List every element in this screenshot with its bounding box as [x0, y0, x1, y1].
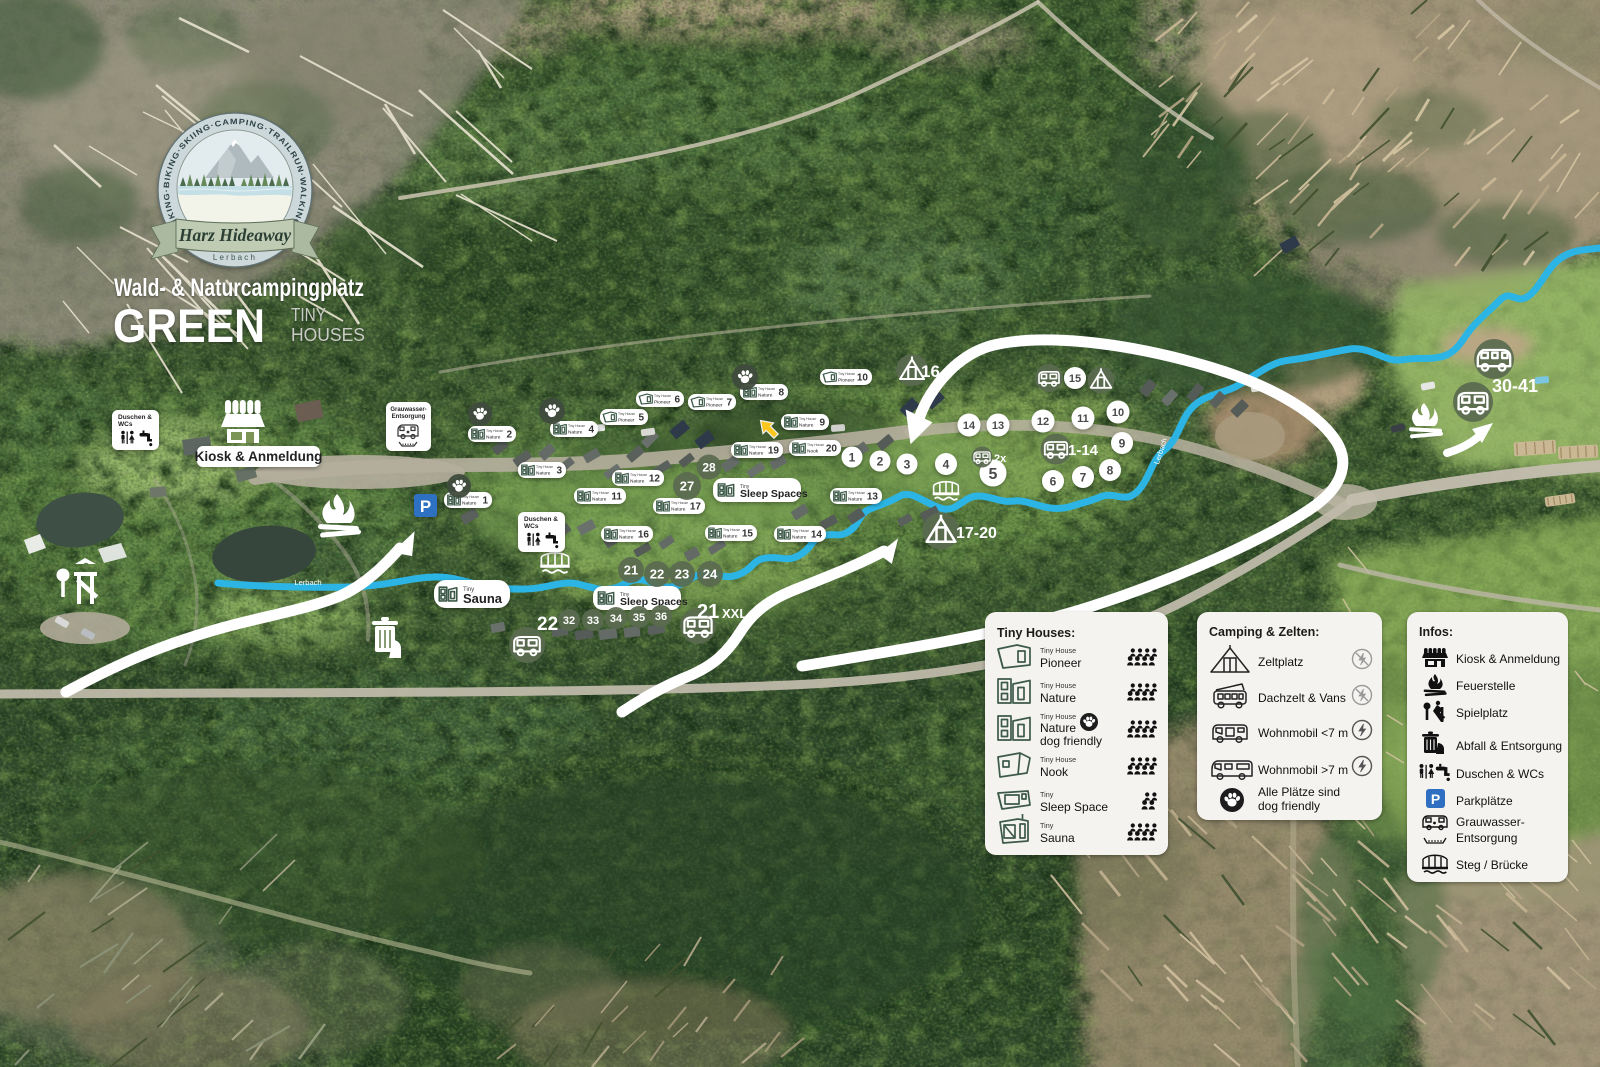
svg-text:5: 5 — [989, 466, 998, 483]
svg-text:Nature: Nature — [758, 392, 773, 398]
svg-text:Nature: Nature — [568, 429, 583, 435]
svg-text:Nook: Nook — [1040, 765, 1069, 779]
svg-text:Kiosk & Anmeldung: Kiosk & Anmeldung — [1456, 652, 1560, 666]
svg-text:Tiny House: Tiny House — [799, 417, 816, 421]
svg-text:dog friendly: dog friendly — [1040, 734, 1102, 748]
svg-text:8: 8 — [1107, 463, 1114, 477]
svg-text:2x: 2x — [994, 453, 1007, 465]
svg-text:Tiny House: Tiny House — [486, 429, 503, 433]
svg-text:14: 14 — [963, 420, 976, 432]
svg-text:10: 10 — [857, 373, 869, 384]
svg-text:Alle Plätze sind: Alle Plätze sind — [1258, 785, 1340, 799]
svg-text:17-20: 17-20 — [956, 525, 997, 542]
svg-text:4: 4 — [943, 457, 950, 471]
svg-text:Zeltplatz: Zeltplatz — [1258, 655, 1303, 669]
svg-text:Nature: Nature — [462, 500, 477, 506]
svg-text:Nature: Nature — [630, 478, 645, 484]
svg-text:8: 8 — [778, 388, 784, 399]
svg-text:Wohnmobil <7 m: Wohnmobil <7 m — [1258, 726, 1348, 740]
svg-text:Tiny House: Tiny House — [1040, 646, 1076, 655]
svg-text:2: 2 — [506, 430, 512, 441]
svg-text:11: 11 — [1077, 413, 1089, 425]
svg-text:1: 1 — [849, 450, 856, 464]
svg-text:21: 21 — [697, 601, 719, 623]
svg-text:Pioneer: Pioneer — [706, 402, 723, 408]
svg-text:22: 22 — [650, 567, 664, 582]
svg-text:9: 9 — [1119, 436, 1126, 450]
svg-text:14: 14 — [811, 530, 823, 541]
svg-text:GREEN: GREEN — [113, 299, 265, 352]
svg-text:Harz Hideaway: Harz Hideaway — [178, 225, 292, 245]
svg-text:19: 19 — [768, 446, 780, 457]
svg-text:7: 7 — [726, 398, 732, 409]
svg-text:32: 32 — [563, 615, 575, 627]
svg-text:Kiosk & Anmeldung: Kiosk & Anmeldung — [195, 449, 323, 464]
svg-text:Pioneer: Pioneer — [1040, 656, 1081, 670]
svg-text:P: P — [420, 497, 431, 516]
svg-text:Lerbach: Lerbach — [213, 253, 257, 262]
svg-text:XXL: XXL — [722, 606, 747, 621]
svg-text:Nature: Nature — [671, 506, 686, 512]
svg-text:Wald- & Naturcampingplatz: Wald- & Naturcampingplatz — [114, 274, 364, 302]
svg-text:P: P — [1431, 791, 1440, 807]
svg-text:Duschen &: Duschen & — [524, 516, 558, 523]
svg-text:9: 9 — [819, 418, 825, 429]
svg-text:Nature: Nature — [536, 470, 551, 476]
svg-text:Sleep Spaces: Sleep Spaces — [620, 596, 688, 608]
svg-text:Nook: Nook — [807, 448, 819, 454]
svg-text:Entsorgung: Entsorgung — [392, 414, 426, 420]
svg-text:Nature: Nature — [799, 422, 814, 428]
svg-text:11: 11 — [611, 492, 622, 503]
svg-text:Tiny: Tiny — [1040, 821, 1054, 830]
svg-text:TINY: TINY — [291, 305, 326, 325]
svg-text:28: 28 — [702, 460, 716, 474]
svg-text:HOUSES: HOUSES — [291, 325, 365, 345]
svg-text:Tiny House: Tiny House — [592, 491, 609, 495]
svg-text:Nature: Nature — [486, 434, 501, 440]
svg-text:21: 21 — [624, 563, 638, 578]
svg-text:Dachzelt & Vans: Dachzelt & Vans — [1258, 691, 1346, 705]
svg-text:2: 2 — [877, 454, 884, 468]
svg-text:Nature: Nature — [1040, 721, 1076, 735]
svg-text:Lerbach: Lerbach — [294, 578, 321, 587]
svg-text:6: 6 — [674, 395, 680, 406]
svg-text:Sleep Space: Sleep Space — [1040, 800, 1108, 814]
svg-text:1-14: 1-14 — [1068, 442, 1099, 459]
svg-text:Tiny House: Tiny House — [848, 491, 865, 495]
svg-text:Tiny House: Tiny House — [568, 424, 585, 428]
svg-text:Camping & Zelten:: Camping & Zelten: — [1209, 625, 1319, 639]
svg-text:Tiny House: Tiny House — [654, 394, 671, 398]
svg-text:15: 15 — [742, 529, 754, 540]
svg-text:12: 12 — [1037, 416, 1049, 428]
svg-text:Nature: Nature — [792, 534, 807, 540]
svg-text:24: 24 — [703, 567, 718, 582]
svg-text:Tiny House: Tiny House — [838, 372, 855, 376]
svg-text:13: 13 — [867, 492, 879, 503]
svg-text:Tiny House: Tiny House — [619, 529, 636, 533]
svg-text:30-41: 30-41 — [1492, 376, 1538, 396]
svg-text:12: 12 — [649, 474, 661, 485]
svg-text:Nature: Nature — [592, 496, 607, 502]
svg-text:36: 36 — [655, 611, 667, 623]
svg-text:4: 4 — [588, 425, 594, 436]
svg-text:Nature: Nature — [848, 496, 863, 502]
svg-text:Grauwasser-: Grauwasser- — [390, 407, 426, 413]
svg-text:Tiny House: Tiny House — [807, 443, 824, 447]
svg-text:3: 3 — [556, 466, 562, 477]
svg-text:Tiny House: Tiny House — [1040, 755, 1076, 764]
svg-text:Spielplatz: Spielplatz — [1456, 706, 1508, 720]
svg-text:Tiny House: Tiny House — [618, 412, 635, 416]
svg-text:7: 7 — [1080, 470, 1087, 484]
svg-text:Pioneer: Pioneer — [654, 399, 671, 405]
svg-text:Tiny House: Tiny House — [749, 445, 766, 449]
svg-text:15: 15 — [1069, 373, 1081, 385]
svg-text:dog friendly: dog friendly — [1258, 799, 1320, 813]
svg-text:Pioneer: Pioneer — [838, 377, 855, 383]
svg-text:10: 10 — [1112, 407, 1124, 419]
svg-text:Steg / Brücke: Steg / Brücke — [1456, 858, 1528, 872]
svg-text:Infos:: Infos: — [1419, 625, 1453, 639]
svg-text:Nature: Nature — [723, 533, 738, 539]
svg-text:Nature: Nature — [619, 534, 634, 540]
svg-text:Nature: Nature — [749, 450, 764, 456]
svg-text:13: 13 — [992, 420, 1004, 432]
svg-text:WCs: WCs — [118, 421, 133, 428]
svg-text:Tiny House: Tiny House — [1040, 681, 1076, 690]
svg-text:Tiny Houses:: Tiny Houses: — [997, 626, 1075, 640]
svg-text:Feuerstelle: Feuerstelle — [1456, 679, 1516, 693]
svg-text:1: 1 — [482, 496, 488, 507]
svg-text:Pioneer: Pioneer — [618, 417, 635, 423]
svg-text:Duschen &: Duschen & — [118, 414, 152, 421]
svg-text:Abfall & Entsorgung: Abfall & Entsorgung — [1456, 739, 1562, 753]
svg-text:Nature: Nature — [1040, 691, 1076, 705]
svg-text:16: 16 — [638, 530, 650, 541]
svg-text:Tiny: Tiny — [1040, 790, 1054, 799]
svg-text:23: 23 — [675, 567, 689, 582]
svg-text:Tiny House: Tiny House — [723, 528, 740, 532]
svg-text:Wohnmobil >7 m: Wohnmobil >7 m — [1258, 763, 1348, 777]
svg-text:22: 22 — [537, 614, 558, 635]
svg-text:Tiny House: Tiny House — [630, 473, 647, 477]
svg-text:Sauna: Sauna — [1040, 831, 1075, 845]
svg-text:35: 35 — [633, 612, 645, 624]
svg-text:6: 6 — [1050, 474, 1057, 488]
svg-text:Sauna: Sauna — [463, 591, 503, 606]
svg-text:16: 16 — [921, 362, 940, 381]
svg-text:33: 33 — [587, 615, 599, 627]
svg-text:17: 17 — [690, 502, 702, 513]
svg-text:5: 5 — [638, 413, 644, 424]
svg-text:Tiny House: Tiny House — [758, 387, 775, 391]
svg-text:27: 27 — [680, 479, 694, 494]
svg-text:Duschen & WCs: Duschen & WCs — [1456, 767, 1544, 781]
svg-text:Tiny House: Tiny House — [536, 465, 553, 469]
svg-text:Grauwasser-: Grauwasser- — [1456, 815, 1525, 829]
svg-text:Tiny House: Tiny House — [792, 529, 809, 533]
svg-text:Sleep Spaces: Sleep Spaces — [740, 488, 808, 500]
svg-text:34: 34 — [610, 613, 623, 625]
svg-text:Tiny House: Tiny House — [706, 397, 723, 401]
svg-text:Parkplätze: Parkplätze — [1456, 794, 1513, 808]
svg-text:20: 20 — [826, 444, 838, 455]
svg-text:WCs: WCs — [524, 523, 539, 530]
svg-text:Entsorgung: Entsorgung — [1456, 831, 1517, 845]
svg-text:Tiny House: Tiny House — [671, 501, 688, 505]
svg-text:3: 3 — [904, 457, 911, 471]
svg-text:Tiny House: Tiny House — [1040, 712, 1076, 721]
